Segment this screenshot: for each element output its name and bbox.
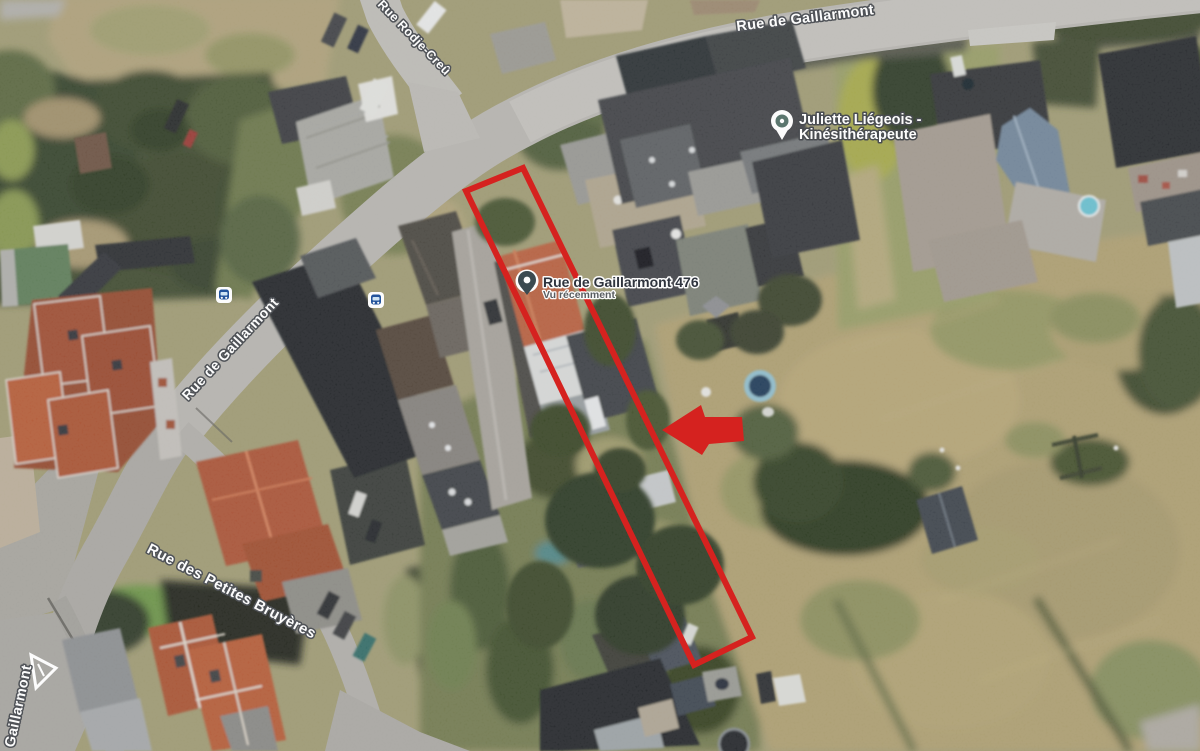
svg-text:Vu récemment: Vu récemment <box>543 289 615 301</box>
svg-text:Kinésithérapeute: Kinésithérapeute <box>799 127 917 143</box>
svg-text:Juliette Liégeois -: Juliette Liégeois - <box>799 112 922 128</box>
svg-text:Rue de Gaillarmont 476: Rue de Gaillarmont 476 <box>543 274 699 290</box>
